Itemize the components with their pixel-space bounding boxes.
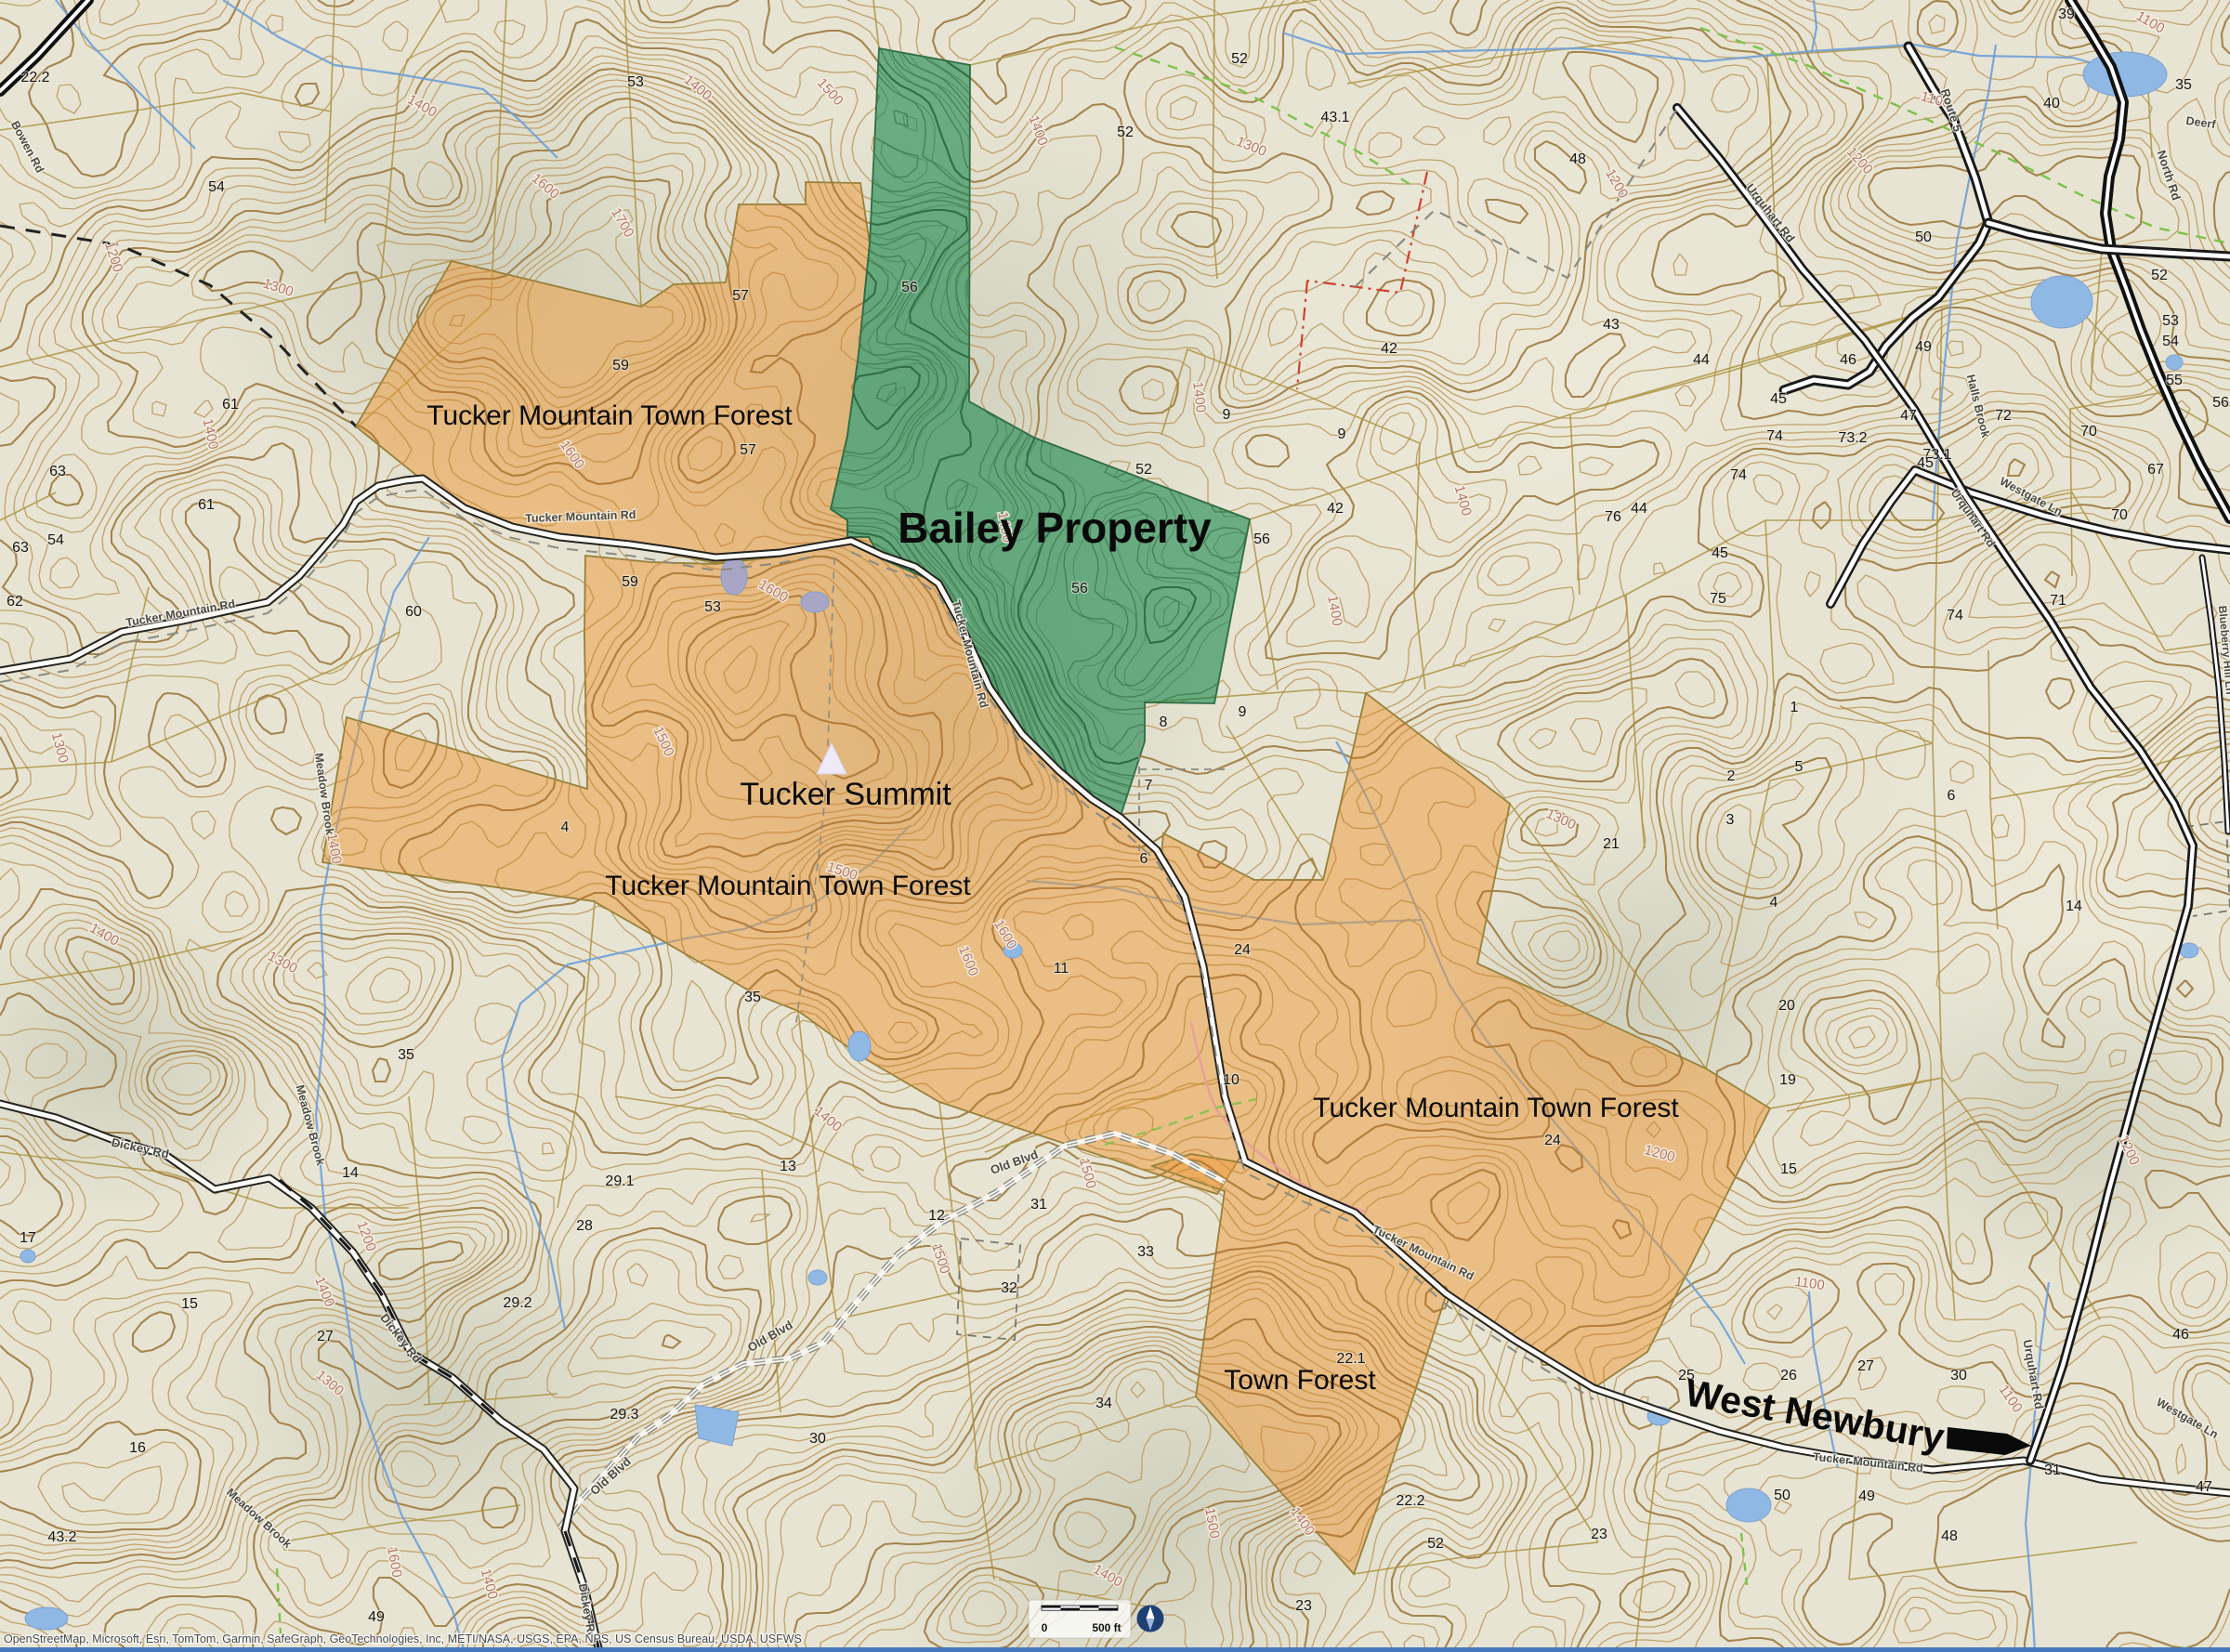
- svg-text:30: 30: [1950, 1368, 1967, 1383]
- svg-text:52: 52: [2151, 268, 2168, 283]
- svg-text:50: 50: [1774, 1488, 1791, 1503]
- svg-text:76: 76: [1605, 509, 1621, 525]
- svg-text:26: 26: [1780, 1368, 1797, 1383]
- svg-text:42: 42: [1327, 501, 1344, 517]
- svg-text:61: 61: [198, 497, 215, 513]
- svg-text:56: 56: [1253, 531, 1270, 547]
- svg-text:16: 16: [129, 1440, 146, 1456]
- svg-text:40: 40: [2043, 96, 2060, 111]
- svg-text:20: 20: [1778, 998, 1795, 1014]
- svg-text:45: 45: [1770, 391, 1787, 407]
- svg-text:49: 49: [368, 1609, 385, 1625]
- svg-text:74: 74: [1730, 467, 1747, 483]
- svg-text:Tucker Mountain Town Forest: Tucker Mountain Town Forest: [426, 400, 793, 431]
- svg-text:23: 23: [1591, 1527, 1607, 1542]
- svg-text:35: 35: [2175, 77, 2192, 93]
- svg-text:33: 33: [1137, 1244, 1154, 1260]
- svg-text:72: 72: [1995, 408, 2012, 424]
- svg-text:29.3: 29.3: [610, 1407, 638, 1423]
- svg-text:54: 54: [2162, 334, 2179, 349]
- svg-text:Tucker Summit: Tucker Summit: [740, 777, 951, 812]
- svg-text:73.2: 73.2: [1838, 430, 1867, 446]
- svg-text:67: 67: [2147, 462, 2164, 478]
- svg-text:35: 35: [744, 990, 761, 1005]
- svg-text:50: 50: [1915, 229, 1932, 245]
- svg-text:49: 49: [1915, 339, 1932, 355]
- svg-text:52: 52: [1135, 462, 1152, 478]
- svg-text:Town Forest: Town Forest: [1224, 1365, 1376, 1396]
- svg-text:0: 0: [1042, 1621, 1048, 1634]
- svg-text:75: 75: [1710, 591, 1726, 607]
- svg-text:31: 31: [2044, 1462, 2061, 1478]
- svg-text:7: 7: [1145, 778, 1153, 793]
- svg-text:Tucker Mountain Town Forest: Tucker Mountain Town Forest: [605, 871, 971, 901]
- svg-text:39: 39: [2058, 7, 2075, 22]
- svg-text:52: 52: [1427, 1536, 1444, 1552]
- svg-text:35: 35: [398, 1047, 414, 1063]
- svg-text:17: 17: [20, 1230, 36, 1246]
- svg-text:56: 56: [1071, 581, 1088, 597]
- svg-text:4: 4: [1770, 895, 1778, 911]
- svg-text:15: 15: [1780, 1161, 1797, 1177]
- svg-text:48: 48: [1569, 151, 1586, 167]
- svg-text:22.2: 22.2: [1396, 1493, 1424, 1509]
- svg-text:23: 23: [1295, 1598, 1312, 1614]
- svg-text:31: 31: [1030, 1197, 1047, 1213]
- svg-text:10: 10: [1223, 1072, 1240, 1088]
- svg-text:4: 4: [561, 819, 570, 835]
- svg-text:74: 74: [1947, 608, 1963, 623]
- svg-text:500 ft: 500 ft: [1092, 1621, 1121, 1634]
- svg-text:13: 13: [780, 1159, 796, 1174]
- svg-text:Bailey Property: Bailey Property: [898, 504, 1212, 552]
- svg-text:57: 57: [732, 288, 749, 304]
- svg-text:70: 70: [2111, 507, 2128, 523]
- svg-text:9: 9: [1239, 704, 1247, 720]
- svg-text:32: 32: [1001, 1280, 1017, 1296]
- svg-text:30: 30: [809, 1431, 826, 1447]
- svg-text:45: 45: [1712, 545, 1728, 561]
- svg-text:53: 53: [627, 74, 644, 90]
- svg-text:6: 6: [1948, 788, 1956, 804]
- svg-text:56: 56: [2212, 395, 2229, 411]
- svg-text:15: 15: [181, 1296, 198, 1312]
- svg-text:27: 27: [317, 1329, 334, 1344]
- svg-text:42: 42: [1381, 341, 1397, 357]
- svg-text:22.2: 22.2: [20, 70, 49, 85]
- svg-text:43.1: 43.1: [1320, 110, 1349, 125]
- svg-text:53: 53: [2162, 313, 2179, 329]
- svg-text:63: 63: [12, 540, 29, 556]
- svg-text:3: 3: [1726, 812, 1735, 828]
- svg-text:54: 54: [47, 532, 64, 548]
- svg-text:56: 56: [901, 280, 918, 295]
- svg-text:46: 46: [2172, 1327, 2189, 1343]
- svg-text:5: 5: [1795, 759, 1804, 775]
- svg-text:62: 62: [7, 594, 23, 610]
- svg-text:44: 44: [1631, 501, 1647, 517]
- svg-text:Tucker Mountain Town Forest: Tucker Mountain Town Forest: [1313, 1093, 1679, 1123]
- svg-text:27: 27: [1857, 1358, 1874, 1374]
- svg-text:2: 2: [1727, 768, 1736, 784]
- svg-text:11: 11: [1054, 961, 1069, 977]
- svg-text:53: 53: [704, 599, 721, 615]
- svg-text:34: 34: [1095, 1396, 1112, 1411]
- svg-text:60: 60: [405, 604, 422, 620]
- svg-text:63: 63: [49, 464, 66, 479]
- svg-text:44: 44: [1693, 352, 1710, 368]
- svg-text:52: 52: [1231, 51, 1248, 67]
- svg-text:OpenStreetMap, Microsoft, Esri: OpenStreetMap, Microsoft, Esri, TomTom, …: [4, 1632, 802, 1645]
- svg-text:59: 59: [622, 574, 638, 590]
- svg-text:14: 14: [342, 1165, 359, 1181]
- svg-text:12: 12: [928, 1208, 945, 1224]
- svg-text:14: 14: [2066, 898, 2082, 914]
- svg-text:55: 55: [2166, 373, 2183, 388]
- svg-text:48: 48: [1941, 1528, 1958, 1544]
- svg-text:29.2: 29.2: [503, 1295, 531, 1311]
- svg-text:1: 1: [1791, 700, 1799, 715]
- svg-text:49: 49: [1858, 1488, 1875, 1504]
- svg-text:6: 6: [1140, 851, 1148, 867]
- svg-text:43.2: 43.2: [47, 1529, 76, 1545]
- svg-text:9: 9: [1223, 407, 1231, 423]
- svg-text:47: 47: [2196, 1479, 2212, 1495]
- svg-text:59: 59: [612, 358, 629, 374]
- svg-text:74: 74: [1766, 428, 1783, 444]
- svg-text:21: 21: [1603, 836, 1620, 852]
- svg-text:8: 8: [1160, 715, 1168, 730]
- svg-text:24: 24: [1544, 1133, 1561, 1148]
- svg-text:45: 45: [1917, 455, 1934, 471]
- svg-text:19: 19: [1779, 1072, 1796, 1088]
- svg-text:24: 24: [1234, 942, 1251, 958]
- svg-text:43: 43: [1603, 317, 1620, 333]
- svg-text:71: 71: [2050, 593, 2066, 609]
- svg-text:47: 47: [1900, 408, 1917, 424]
- svg-text:28: 28: [576, 1218, 593, 1234]
- svg-text:52: 52: [1117, 125, 1134, 140]
- svg-text:57: 57: [740, 442, 756, 458]
- svg-text:54: 54: [208, 179, 225, 195]
- svg-text:29.1: 29.1: [605, 1173, 634, 1189]
- svg-text:46: 46: [1840, 352, 1856, 368]
- svg-text:61: 61: [222, 397, 239, 413]
- svg-text:9: 9: [1338, 426, 1346, 442]
- svg-text:70: 70: [2080, 424, 2097, 439]
